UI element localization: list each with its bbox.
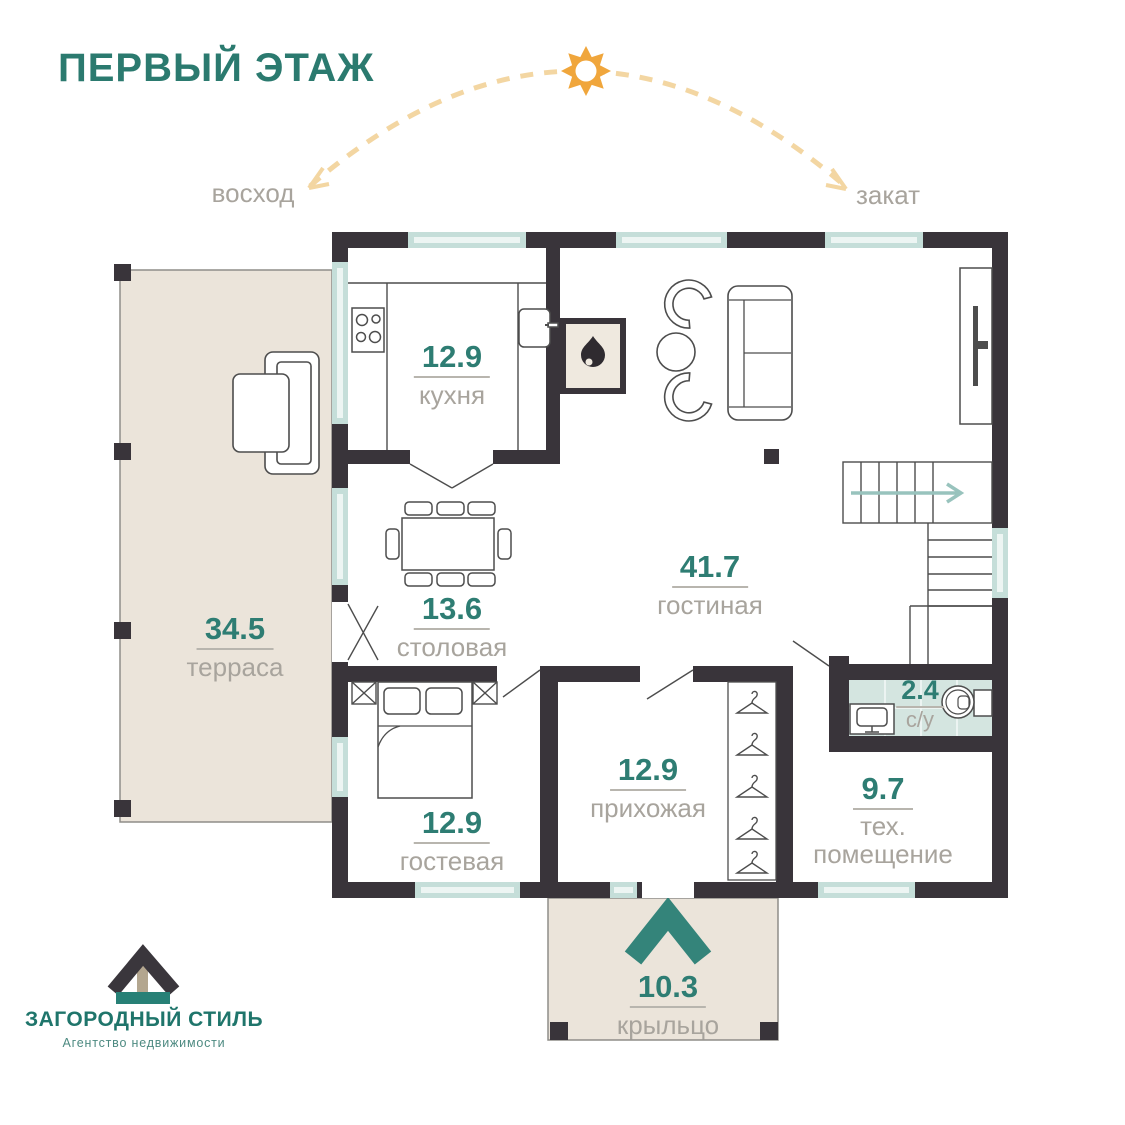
terrace-post: [114, 622, 131, 639]
terrace-post: [114, 800, 131, 817]
bathroom-door-swing: [793, 641, 829, 666]
toilet-icon: [942, 686, 992, 718]
sun-icon: [561, 46, 611, 96]
porch-post: [550, 1022, 568, 1040]
room-area: 12.9: [610, 753, 686, 791]
room-name: крыльцо: [617, 1011, 719, 1039]
tv-unit: [960, 268, 992, 424]
room-name: с/у: [896, 708, 944, 732]
sunrise-label: восход: [212, 178, 295, 209]
armchair: [655, 271, 714, 332]
logo-subtitle: Агентство недвижимости: [63, 1036, 226, 1050]
room-label-tech: 9.7 тех. помещение: [798, 772, 968, 868]
terrace-door-opening: [332, 602, 348, 662]
room-label-guest: 12.9 гостевая: [400, 806, 505, 876]
room-name: прихожая: [590, 794, 706, 822]
room-name: тех. помещение: [798, 813, 968, 868]
room-name: столовая: [397, 633, 508, 661]
closet: [728, 682, 776, 880]
room-name: гостиная: [657, 591, 763, 619]
tv-icon: [973, 306, 978, 386]
room-area: 34.5: [197, 612, 273, 650]
room-label-living: 41.7 гостиная: [657, 550, 763, 620]
room-area: 12.9: [414, 806, 490, 844]
stairs-direction-arrow: [851, 484, 961, 502]
logo-brand: ЗАГОРОДНЫЙ СТИЛЬ: [25, 1008, 263, 1032]
bed: [378, 682, 472, 798]
logo-house-icon: [113, 955, 174, 1004]
terrace-post: [114, 443, 131, 460]
room-label-porch: 10.3 крыльцо: [617, 970, 719, 1040]
room-label-dining: 13.6 столовая: [397, 592, 508, 662]
floor-plan-page: ПЕРВЫЙ ЭТАЖ восход закат 12.9 кухня 13.6…: [0, 0, 1125, 1125]
room-area: 9.7: [853, 772, 912, 810]
terrace-post: [114, 264, 131, 281]
room-name: кухня: [414, 381, 490, 409]
coffee-table: [657, 333, 695, 371]
kitchen-door-swing: [410, 464, 493, 488]
room-area: 2.4: [896, 676, 944, 708]
sunset-label: закат: [856, 180, 920, 211]
room-area: 12.9: [414, 340, 490, 378]
sun-path-arc: [309, 71, 846, 189]
room-label-hallway: 12.9 прихожая: [590, 753, 706, 823]
room-area: 13.6: [414, 592, 490, 630]
fireplace-icon: [560, 318, 626, 394]
armchair: [655, 369, 714, 430]
room-label-bathroom: 2.4 с/у: [896, 676, 944, 732]
room-area: 10.3: [630, 970, 706, 1008]
page-title: ПЕРВЫЙ ЭТАЖ: [58, 46, 374, 91]
floor-plan-drawing: [0, 0, 1125, 1125]
room-label-kitchen: 12.9 кухня: [414, 340, 490, 410]
terrace-door-swing: [348, 604, 378, 660]
terrace: [114, 264, 332, 822]
room-name: гостевая: [400, 847, 505, 875]
room-name: терраса: [187, 653, 284, 681]
bedroom-door-swing: [503, 670, 540, 697]
column-post: [764, 449, 779, 464]
room-area: 41.7: [672, 550, 748, 588]
room-label-terrace: 34.5 терраса: [187, 612, 284, 682]
porch-post: [760, 1022, 778, 1040]
sofa: [728, 286, 792, 420]
entrance-door-opening: [642, 882, 694, 898]
hallway-door-swing: [647, 670, 693, 699]
bathroom-sink-icon: [850, 704, 894, 734]
dining-table: [386, 502, 511, 586]
stove-icon: [352, 308, 384, 352]
